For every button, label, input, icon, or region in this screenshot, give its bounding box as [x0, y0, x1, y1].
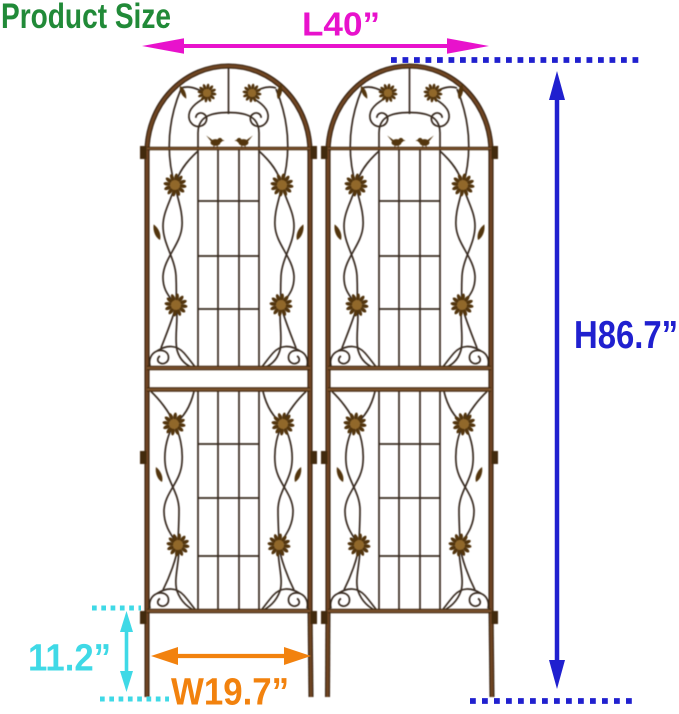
svg-text:L40”: L40”: [302, 6, 380, 43]
svg-text:Product Size: Product Size: [1, 0, 171, 36]
svg-text:W19.7”: W19.7”: [171, 672, 289, 710]
svg-text:H86.7”: H86.7”: [574, 314, 678, 357]
svg-text:11.2”: 11.2”: [28, 638, 111, 680]
